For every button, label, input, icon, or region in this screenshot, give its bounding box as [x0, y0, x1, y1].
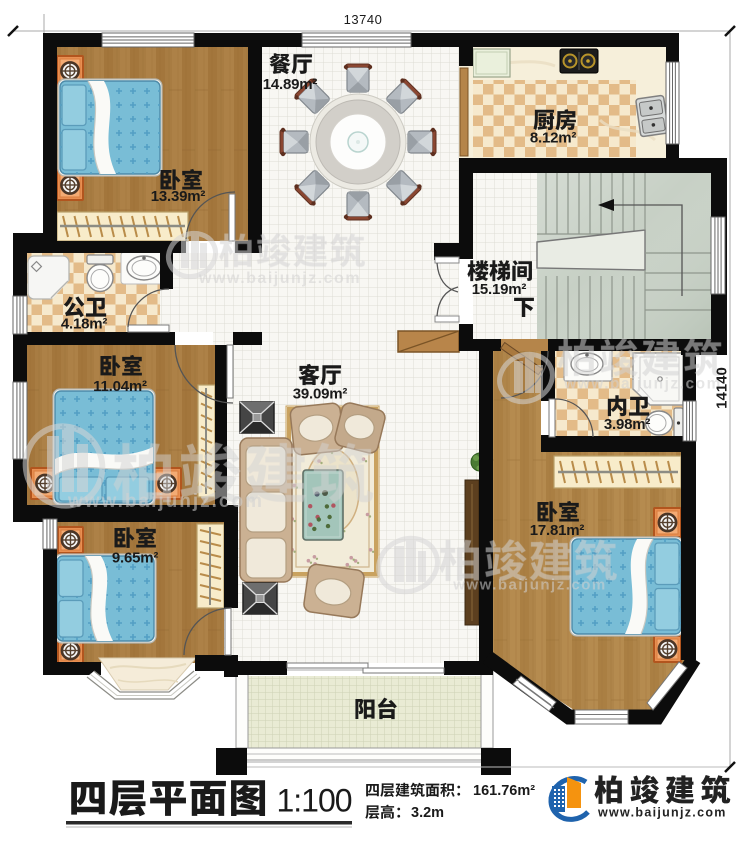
svg-text:4.18m²: 4.18m² — [61, 315, 108, 332]
svg-text:13740: 13740 — [344, 12, 383, 27]
svg-text:17.81m²: 17.81m² — [530, 522, 585, 539]
svg-text:www.baijunjz.com: www.baijunjz.com — [198, 270, 361, 287]
svg-text:www.baijunjz.com: www.baijunjz.com — [67, 491, 264, 512]
svg-text:www.baijunjz.com: www.baijunjz.com — [452, 576, 606, 593]
svg-text:14.89m²: 14.89m² — [263, 76, 318, 93]
svg-text:3.2m: 3.2m — [411, 805, 444, 821]
svg-text:11.04m²: 11.04m² — [93, 378, 147, 395]
svg-text:161.76m²: 161.76m² — [473, 783, 535, 799]
svg-text:14140: 14140 — [714, 367, 731, 409]
svg-text:39.09m²: 39.09m² — [293, 385, 348, 402]
svg-text:8.12m²: 8.12m² — [530, 129, 577, 146]
svg-text:3.98m²: 3.98m² — [604, 416, 651, 433]
svg-text:www.baijunjz.com: www.baijunjz.com — [597, 806, 727, 820]
svg-text:9.65m²: 9.65m² — [112, 549, 159, 566]
svg-text:www.baijunjz.com: www.baijunjz.com — [563, 376, 722, 393]
svg-text:15.19m²: 15.19m² — [472, 281, 527, 298]
svg-text:1:100: 1:100 — [276, 783, 351, 819]
svg-text:13.39m²: 13.39m² — [151, 188, 206, 205]
